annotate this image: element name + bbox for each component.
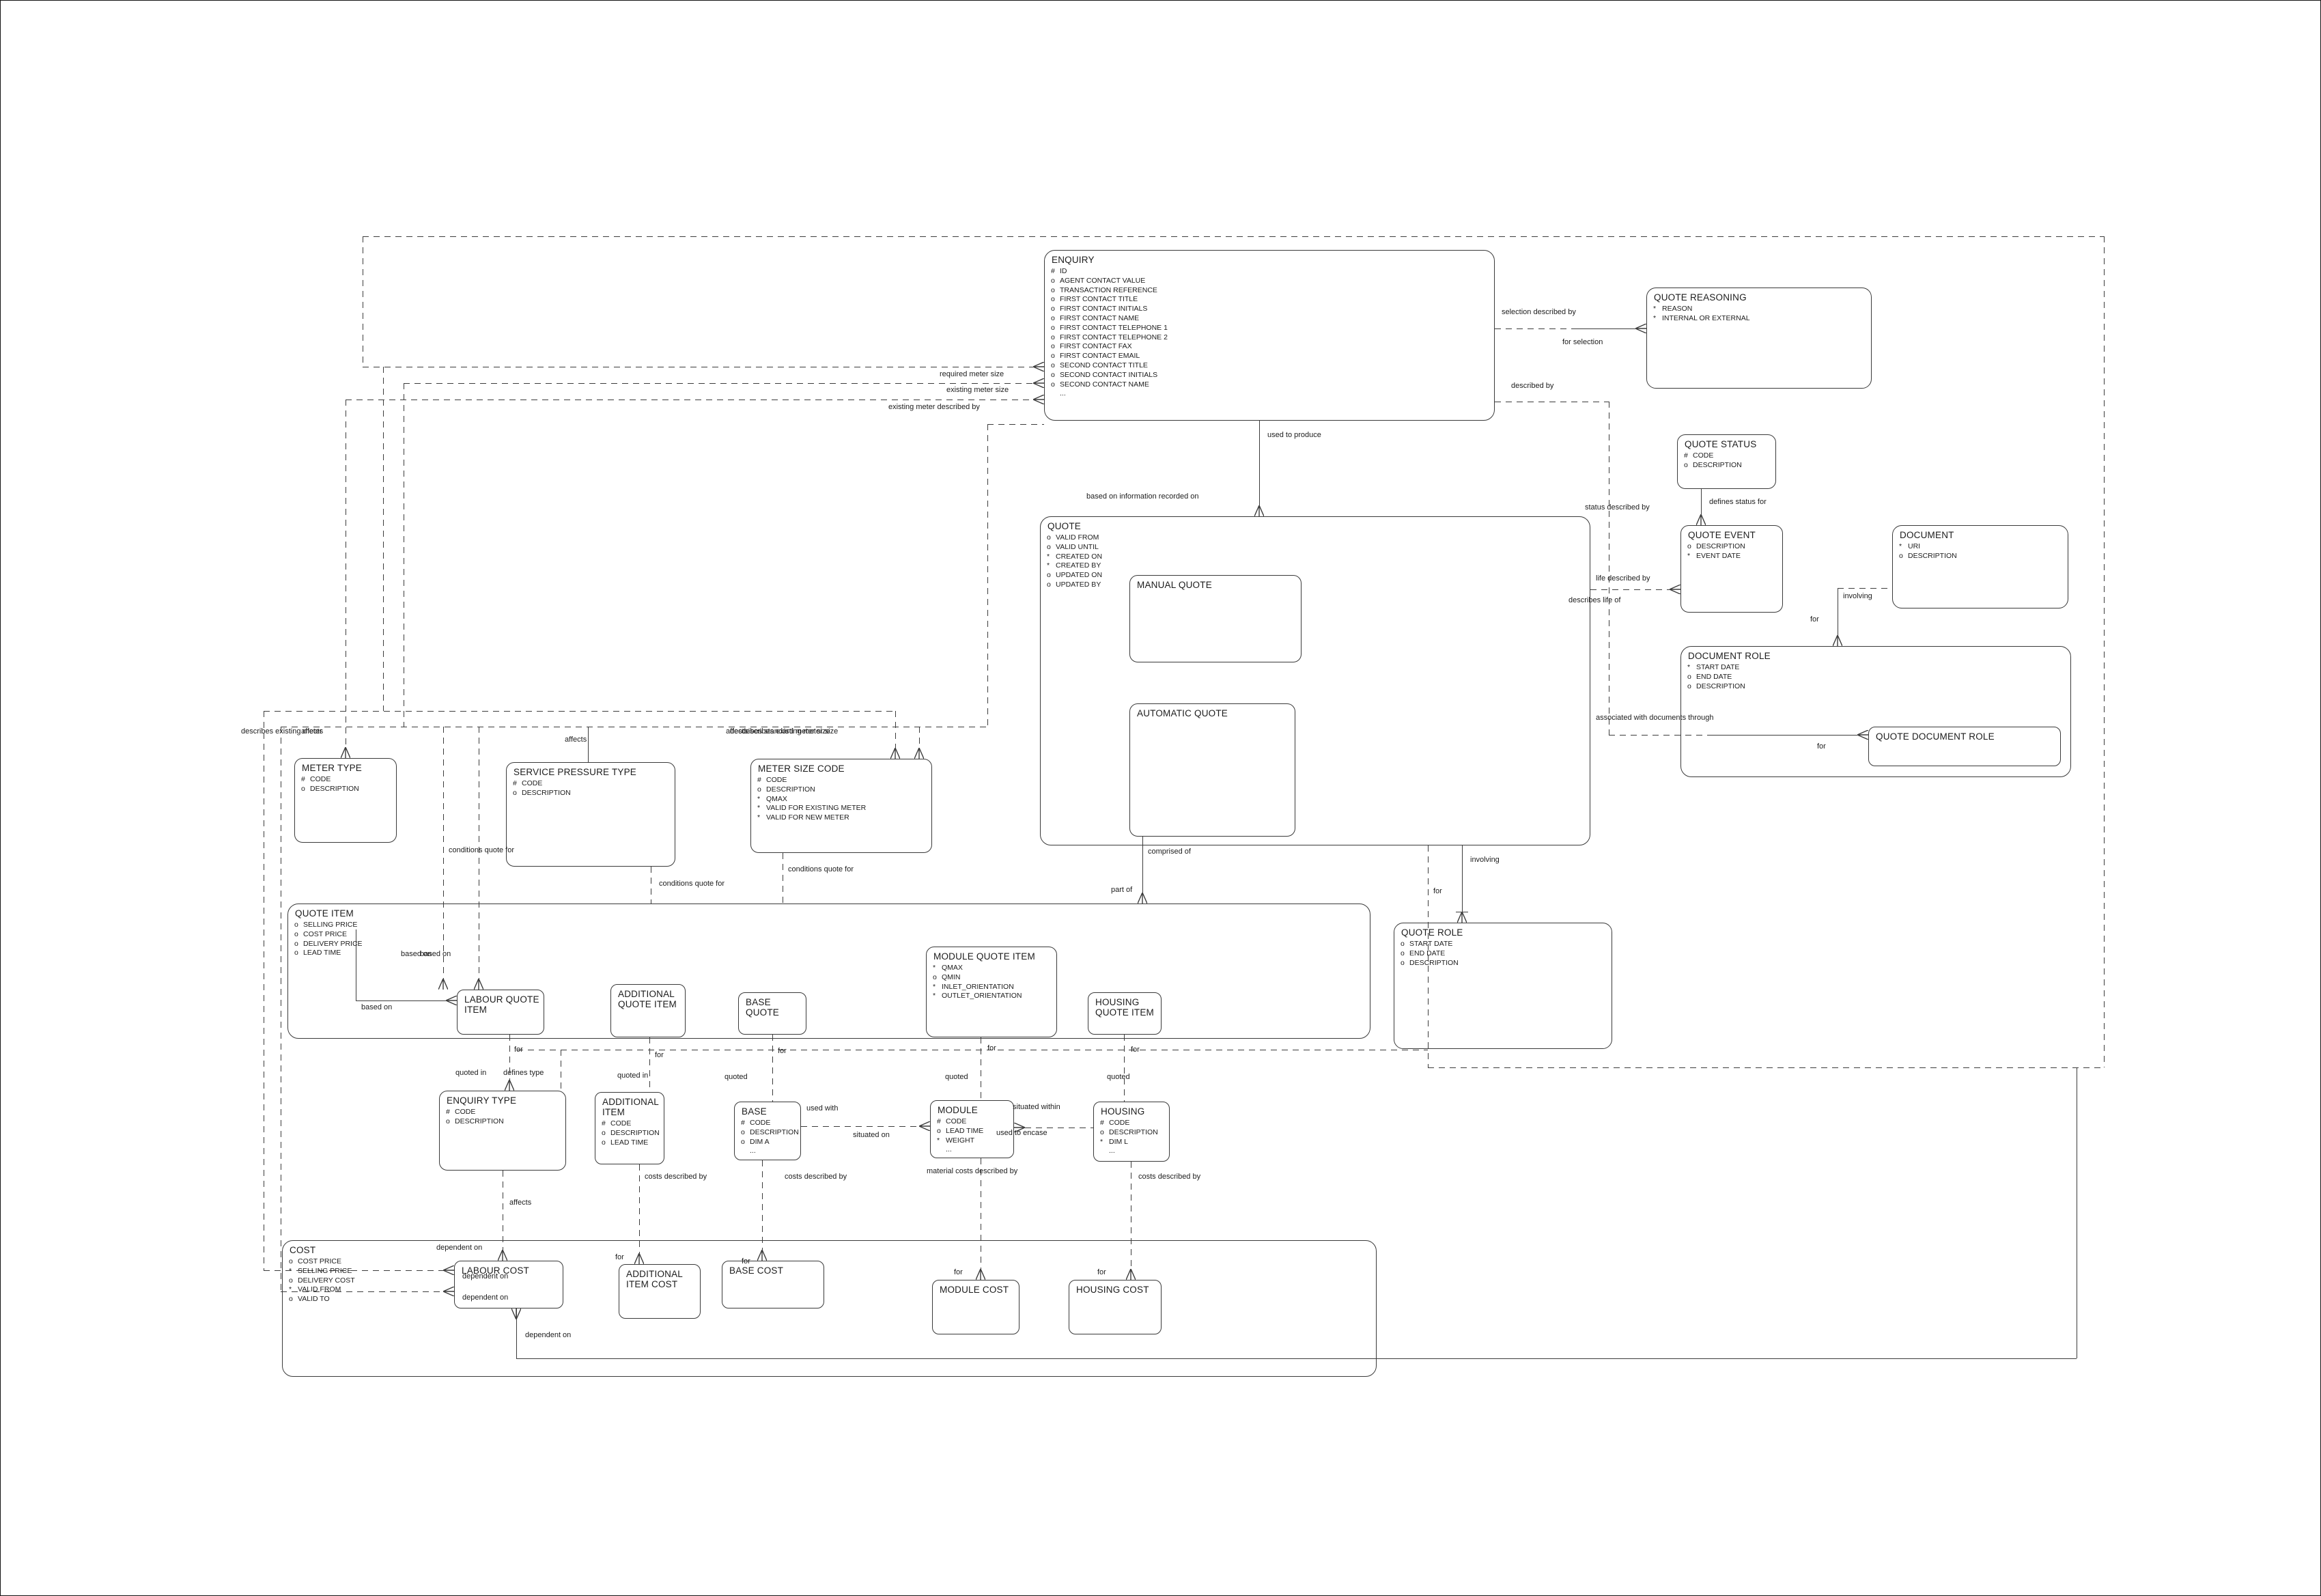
attribute-row: oSECOND CONTACT INITIALS <box>1051 371 1494 380</box>
rel-label-dependent-on: dependent on <box>462 1272 508 1280</box>
entity-cost: COSToCOST PRICE*SELLING PRICEoDELIVERY C… <box>282 1240 1377 1377</box>
attribute-marker: o <box>1047 580 1056 590</box>
entity-title-enquiry-type: ENQUIRY TYPE <box>440 1091 565 1106</box>
attribute-row: oVALID TO <box>289 1295 1376 1304</box>
attribute-marker: o <box>741 1128 750 1138</box>
rel-label-comprised-of: comprised of <box>1148 848 1191 856</box>
attribute-row: ... <box>741 1147 800 1156</box>
attribute-marker: o <box>1051 380 1060 390</box>
connector-segment <box>264 711 895 712</box>
attribute-marker: * <box>1047 561 1056 571</box>
crow-foot-icon <box>890 748 900 759</box>
attribute-name: VALID UNTIL <box>1056 543 1099 552</box>
connector-segment <box>987 424 988 727</box>
attribute-marker: # <box>602 1119 610 1129</box>
attribute-row: oTRANSACTION REFERENCE <box>1051 286 1494 296</box>
entity-title-base-quote: BASE QUOTE <box>739 993 806 1018</box>
rel-label-described-by: described by <box>1511 382 1553 390</box>
entity-title-housing: HOUSING <box>1094 1102 1169 1117</box>
attribute-marker: * <box>1653 305 1662 314</box>
rel-label-selection-described-by: selection described by <box>1502 308 1576 316</box>
attribute-name: UPDATED ON <box>1056 571 1102 580</box>
attribute-marker: o <box>757 785 766 795</box>
entity-title-quote-status: QUOTE STATUS <box>1678 435 1775 449</box>
attribute-row: oSECOND CONTACT TITLE <box>1051 361 1494 371</box>
attribute-marker: o <box>294 940 303 949</box>
attribute-name: LEAD TIME <box>610 1138 648 1148</box>
entity-title-enquiry: ENQUIRY <box>1045 251 1494 265</box>
entity-quote-role: QUOTE ROLEoSTART DATEoEND DATEoDESCRIPTI… <box>1394 923 1612 1049</box>
attribute-marker: o <box>289 1295 298 1304</box>
entity-title-base-cost: BASE COST <box>722 1261 824 1276</box>
attribute-marker: # <box>1100 1119 1109 1128</box>
connector-segment <box>1838 588 1892 589</box>
entity-module-quote-item: MODULE QUOTE ITEM*QMAXoQMIN*INLET_ORIENT… <box>926 947 1057 1037</box>
attribute-row: ... <box>1051 389 1494 399</box>
connector-segment <box>1428 1067 2104 1068</box>
entity-title-quote-item: QUOTE ITEM <box>288 904 1370 919</box>
attribute-row: oAGENT CONTACT VALUE <box>1051 277 1494 286</box>
entity-title-additional-item: ADDITIONAL ITEM <box>595 1093 664 1117</box>
entity-title-module: MODULE <box>931 1101 1013 1115</box>
attribute-marker: o <box>602 1129 610 1138</box>
rel-label-based-on: based on <box>361 1003 392 1011</box>
rel-label-involving: involving <box>1470 856 1500 864</box>
rel-label-associated-with-documents-through: associated with documents through <box>1596 714 1713 722</box>
attribute-row: oDESCRIPTION <box>757 785 931 795</box>
entity-attributes: *QMAXoQMIN*INLET_ORIENTATION*OUTLET_ORIE… <box>927 964 1056 1001</box>
entity-attributes: #CODEoDESCRIPTION <box>1678 451 1775 471</box>
attribute-row: #CODE <box>446 1108 565 1117</box>
entity-title-housing-quote-item: HOUSING QUOTE ITEM <box>1088 993 1161 1018</box>
attribute-row: #CODE <box>301 775 396 785</box>
entity-automatic-quote: AUTOMATIC QUOTE <box>1129 703 1295 837</box>
attribute-row: oLEAD TIME <box>294 949 1370 958</box>
attribute-marker: o <box>294 949 303 958</box>
attribute-row: *QMAX <box>757 795 931 804</box>
attribute-name: END DATE <box>1696 673 1732 682</box>
rel-label-conditions-quote-for: conditions quote for <box>659 880 725 888</box>
rel-label-defines-type: defines type <box>503 1069 544 1077</box>
entity-title-base: BASE <box>735 1102 800 1117</box>
rel-label-for: for <box>778 1047 787 1055</box>
entity-additional-quote-item: ADDITIONAL QUOTE ITEM <box>610 984 686 1037</box>
entity-title-quote-event: QUOTE EVENT <box>1681 526 1782 540</box>
attribute-marker <box>1100 1147 1109 1156</box>
attribute-marker: # <box>446 1108 455 1117</box>
attribute-row: *QMAX <box>933 964 1056 973</box>
attribute-name: CODE <box>522 779 542 789</box>
crow-foot-icon <box>1833 635 1842 646</box>
attribute-marker: o <box>294 921 303 930</box>
attribute-row: *INLET_ORIENTATION <box>933 983 1056 992</box>
crow-foot-icon <box>914 748 924 759</box>
attribute-name: CODE <box>766 776 787 785</box>
attribute-marker: o <box>1051 352 1060 361</box>
attribute-name: DESCRIPTION <box>766 785 815 795</box>
entity-base: BASE#CODEoDESCRIPTIONoDIM A... <box>734 1102 801 1160</box>
crow-foot-icon <box>438 979 448 990</box>
attribute-row: *VALID FOR EXISTING METER <box>757 804 931 813</box>
rel-label-part-of: part of <box>1111 886 1132 894</box>
attribute-name: FIRST CONTACT NAME <box>1060 314 1139 324</box>
attribute-row: oFIRST CONTACT INITIALS <box>1051 305 1494 314</box>
attribute-row: oDELIVERY PRICE <box>294 940 1370 949</box>
rel-label-for: for <box>1097 1268 1106 1276</box>
rel-label-for: for <box>1817 742 1826 751</box>
entity-attributes: #CODEoDESCRIPTIONoLEAD TIME <box>595 1119 664 1147</box>
attribute-row: #CODE <box>1100 1119 1169 1128</box>
rel-label-used-with: used with <box>806 1104 838 1112</box>
attribute-row: #CODE <box>757 776 931 785</box>
crow-foot-icon <box>634 1253 644 1264</box>
rel-label-costs-described-by: costs described by <box>785 1173 847 1181</box>
attribute-name: END DATE <box>1409 949 1445 959</box>
attribute-marker: o <box>301 785 310 794</box>
attribute-name: COST PRICE <box>298 1257 341 1267</box>
rel-label-defines-status-for: defines status for <box>1709 498 1767 506</box>
attribute-marker: o <box>1051 305 1060 314</box>
entity-title-document-role: DOCUMENT ROLE <box>1681 647 2070 661</box>
connector-segment <box>517 1050 1428 1050</box>
attribute-name: DELIVERY PRICE <box>303 940 363 949</box>
entity-enquiry-type: ENQUIRY TYPE#CODEoDESCRIPTION <box>439 1091 566 1171</box>
rel-label-costs-described-by: costs described by <box>1138 1173 1200 1181</box>
attribute-name: WEIGHT <box>946 1136 974 1146</box>
attribute-marker: o <box>933 973 942 983</box>
attribute-marker: o <box>1051 361 1060 371</box>
attribute-row: oSTART DATE <box>1401 940 1612 949</box>
attribute-marker: o <box>1051 286 1060 296</box>
attribute-marker <box>1051 389 1060 399</box>
attribute-marker: o <box>1100 1128 1109 1138</box>
rel-label-dependent-on: dependent on <box>462 1293 508 1302</box>
attribute-row: *REASON <box>1653 305 1871 314</box>
rel-label-existing-meter-described-by: existing meter described by <box>888 403 980 411</box>
entity-module-cost: MODULE COST <box>932 1280 1019 1334</box>
attribute-row: #ID <box>1051 267 1494 277</box>
entity-title-service-pressure-type: SERVICE PRESSURE TYPE <box>507 763 675 777</box>
rel-label-material-costs-described-by: material costs described by <box>927 1167 1017 1175</box>
attribute-name: SECOND CONTACT NAME <box>1060 380 1149 390</box>
attribute-row: *INTERNAL OR EXTERNAL <box>1653 314 1871 324</box>
connector-segment <box>772 1035 773 1102</box>
connector-segment <box>1124 1035 1125 1102</box>
attribute-marker: o <box>1051 371 1060 380</box>
connector-segment <box>783 853 783 904</box>
entity-quote-item: QUOTE ITEMoSELLING PRICEoCOST PRICEoDELI… <box>287 904 1370 1039</box>
attribute-name: SELLING PRICE <box>298 1267 352 1276</box>
crow-foot-icon <box>1696 514 1706 525</box>
attribute-marker: o <box>1899 552 1908 561</box>
connector-segment <box>346 400 346 750</box>
entity-meter-type: METER TYPE#CODEoDESCRIPTION <box>294 758 397 843</box>
connector-segment <box>363 367 1033 367</box>
attribute-name: ... <box>1109 1147 1115 1156</box>
attribute-marker: o <box>1051 324 1060 333</box>
attribute-row: *CREATED BY <box>1047 561 1590 571</box>
rel-label-costs-described-by: costs described by <box>645 1173 707 1181</box>
rel-label-situated-within: situated within <box>1013 1103 1060 1111</box>
rel-label-for: for <box>655 1051 664 1059</box>
connector-segment <box>649 1037 650 1092</box>
connector-segment <box>588 727 589 762</box>
rel-label-based-on: based on <box>420 950 451 958</box>
rel-label-involving: involving <box>1843 592 1872 600</box>
crow-foot-icon <box>1670 585 1680 594</box>
rel-label-conditions-quote-for: conditions quote for <box>449 846 514 854</box>
crow-foot-icon <box>1033 395 1044 404</box>
connector-segment <box>383 367 384 711</box>
attribute-name: DESCRIPTION <box>310 785 359 794</box>
attribute-row: oDESCRIPTION <box>1684 461 1775 471</box>
rel-label-for: for <box>1810 615 1819 624</box>
attribute-name: SECOND CONTACT TITLE <box>1060 361 1148 371</box>
connector-segment <box>404 383 1033 384</box>
attribute-marker: # <box>937 1117 946 1127</box>
attribute-marker: o <box>289 1276 298 1286</box>
entity-title-meter-size-code: METER SIZE CODE <box>751 759 931 774</box>
rel-label-for: for <box>1433 887 1442 895</box>
connector-segment <box>1701 489 1702 514</box>
attribute-name: DESCRIPTION <box>1908 552 1957 561</box>
crow-foot-icon <box>505 1080 514 1091</box>
connector-segment <box>404 383 404 727</box>
attribute-marker: o <box>1687 673 1696 682</box>
connector-segment <box>281 727 281 1291</box>
entity-title-automatic-quote: AUTOMATIC QUOTE <box>1130 704 1295 718</box>
attribute-row: oEND DATE <box>1687 673 2070 682</box>
attribute-marker: * <box>289 1267 298 1276</box>
connector-segment <box>346 400 1033 400</box>
attribute-name: QMAX <box>942 964 963 973</box>
entity-enquiry: ENQUIRY#IDoAGENT CONTACT VALUEoTRANSACTI… <box>1044 250 1495 421</box>
entity-housing-quote-item: HOUSING QUOTE ITEM <box>1088 992 1162 1035</box>
connector-segment <box>561 1050 561 1091</box>
connector-segment <box>1259 421 1260 505</box>
rel-label-dependent-on: dependent on <box>436 1244 482 1252</box>
attribute-row: oDESCRIPTION <box>602 1129 664 1138</box>
rel-label-affects: affects <box>565 736 587 744</box>
entity-attributes: *REASON*INTERNAL OR EXTERNAL <box>1647 305 1871 324</box>
entity-quote-document-role: QUOTE DOCUMENT ROLE <box>1868 727 2061 766</box>
crow-foot-icon <box>1857 730 1868 740</box>
rel-label-affects: affects <box>301 727 323 736</box>
attribute-marker: # <box>757 776 766 785</box>
attribute-name: UPDATED BY <box>1056 580 1101 590</box>
attribute-marker: o <box>937 1127 946 1136</box>
attribute-marker <box>937 1145 946 1155</box>
attribute-row: oFIRST CONTACT TELEPHONE 2 <box>1051 333 1494 343</box>
entity-attributes: #IDoAGENT CONTACT VALUEoTRANSACTION REFE… <box>1045 267 1494 399</box>
entity-title-quote-role: QUOTE ROLE <box>1394 923 1612 938</box>
attribute-name: DESCRIPTION <box>750 1128 799 1138</box>
attribute-row: oQMIN <box>933 973 1056 983</box>
attribute-name: DELIVERY COST <box>298 1276 355 1286</box>
attribute-name: LEAD TIME <box>303 949 341 958</box>
attribute-row: oDESCRIPTION <box>741 1128 800 1138</box>
entity-attributes: #CODEoDESCRIPTIONoDIM A... <box>735 1119 800 1156</box>
attribute-name: VALID FROM <box>298 1285 341 1295</box>
attribute-name: QMAX <box>766 795 787 804</box>
attribute-name: SELLING PRICE <box>303 921 357 930</box>
attribute-name: INTERNAL OR EXTERNAL <box>1662 314 1750 324</box>
attribute-name: CREATED BY <box>1056 561 1101 571</box>
crow-foot-icon <box>446 996 457 1005</box>
entity-attributes: *START DATEoEND DATEoDESCRIPTION <box>1681 663 2070 691</box>
crow-foot-icon <box>498 1250 507 1261</box>
rel-label-affects: affects <box>509 1199 531 1207</box>
attribute-marker: * <box>1899 542 1908 552</box>
crow-foot-icon <box>511 1308 521 1319</box>
rel-label-life-described-by: life described by <box>1596 574 1650 583</box>
attribute-marker: * <box>1687 552 1696 561</box>
attribute-name: ... <box>1060 389 1066 399</box>
rel-label-quoted: quoted <box>1107 1073 1130 1081</box>
attribute-name: QMIN <box>942 973 960 983</box>
entity-quote-reasoning: QUOTE REASONING*REASON*INTERNAL OR EXTER… <box>1646 288 1872 389</box>
entity-title-quote-reasoning: QUOTE REASONING <box>1647 288 1871 303</box>
connector-segment <box>2077 1067 2077 1358</box>
attribute-marker: * <box>933 983 942 992</box>
connector-segment <box>1462 845 1463 912</box>
attribute-marker: * <box>933 964 942 973</box>
attribute-row: oVALID FROM <box>1047 533 1590 543</box>
attribute-name: CREATED ON <box>1056 552 1102 562</box>
erd-canvas: ENQUIRY#IDoAGENT CONTACT VALUEoTRANSACTI… <box>0 0 2321 1596</box>
rel-label-quoted: quoted <box>945 1073 968 1081</box>
connector-segment <box>981 1037 981 1100</box>
attribute-name: COST PRICE <box>303 930 347 940</box>
attribute-marker: o <box>289 1257 298 1267</box>
crow-foot-icon <box>1138 893 1147 904</box>
attribute-marker: o <box>1401 949 1409 959</box>
entity-title-meter-type: METER TYPE <box>295 759 396 773</box>
entity-meter-size-code: METER SIZE CODE#CODEoDESCRIPTION*QMAX*VA… <box>750 759 932 853</box>
entity-document: DOCUMENT*URIoDESCRIPTION <box>1892 525 2068 608</box>
entity-title-additional-item-cost: ADDITIONAL ITEM COST <box>619 1265 700 1289</box>
rel-label-for: for <box>615 1253 624 1261</box>
attribute-marker: o <box>1687 542 1696 552</box>
attribute-marker: o <box>446 1117 455 1127</box>
entity-attributes: oCOST PRICE*SELLING PRICEoDELIVERY COST*… <box>283 1257 1376 1304</box>
attribute-row: oCOST PRICE <box>294 930 1370 940</box>
crow-foot-icon <box>976 1269 985 1280</box>
entity-additional-item: ADDITIONAL ITEM#CODEoDESCRIPTIONoLEAD TI… <box>595 1092 664 1164</box>
connector-segment <box>762 1160 763 1250</box>
attribute-name: SECOND CONTACT INITIALS <box>1060 371 1157 380</box>
attribute-marker: * <box>757 795 766 804</box>
attribute-row: #CODE <box>741 1119 800 1128</box>
attribute-name: AGENT CONTACT VALUE <box>1060 277 1145 286</box>
attribute-marker: # <box>741 1119 750 1128</box>
attribute-name: CODE <box>750 1119 770 1128</box>
connector-segment <box>363 236 2104 237</box>
attribute-marker: o <box>1047 543 1056 552</box>
attribute-row: oUPDATED BY <box>1047 580 1590 590</box>
attribute-row: oDESCRIPTION <box>1687 542 1782 552</box>
attribute-row: oEND DATE <box>1401 949 1612 959</box>
attribute-name: FIRST CONTACT TELEPHONE 1 <box>1060 324 1168 333</box>
attribute-row: #CODE <box>602 1119 664 1129</box>
attribute-name: FIRST CONTACT INITIALS <box>1060 305 1147 314</box>
rel-label-situated-on: situated on <box>853 1131 890 1139</box>
connector-segment <box>1590 589 1670 590</box>
attribute-marker: o <box>602 1138 610 1148</box>
attribute-marker: o <box>1051 295 1060 305</box>
entity-title-quote: QUOTE <box>1041 517 1590 531</box>
connector-segment <box>1571 328 1635 329</box>
rel-label-for: for <box>514 1046 523 1054</box>
entity-quote: QUOTEoVALID FROMoVALID UNTIL*CREATED ON*… <box>1040 516 1590 845</box>
attribute-row: oDELIVERY COST <box>289 1276 1376 1286</box>
attribute-marker: o <box>1051 314 1060 324</box>
attribute-marker: o <box>1047 571 1056 580</box>
attribute-name: DESCRIPTION <box>1409 959 1459 968</box>
entity-title-labour-quote-item: LABOUR QUOTE ITEM <box>458 990 544 1015</box>
crow-foot-icon <box>341 747 350 758</box>
attribute-marker: # <box>1051 267 1060 277</box>
crow-foot-icon <box>1635 324 1646 333</box>
crow-foot-icon <box>1126 1269 1136 1280</box>
crow-foot-icon <box>919 1121 930 1131</box>
connector-segment <box>1495 402 1609 402</box>
crow-foot-icon <box>1254 505 1264 516</box>
attribute-marker: o <box>741 1138 750 1147</box>
attribute-name: START DATE <box>1696 663 1739 673</box>
attribute-marker: o <box>1051 333 1060 343</box>
entity-service-pressure-type: SERVICE PRESSURE TYPE#CODEoDESCRIPTION <box>506 762 675 867</box>
attribute-name: VALID FOR NEW METER <box>766 813 849 823</box>
rel-label-existing-meter-size: existing meter size <box>946 386 1009 394</box>
attribute-marker: * <box>1687 663 1696 673</box>
attribute-name: DESCRIPTION <box>1109 1128 1158 1138</box>
attribute-row: *OUTLET_ORIENTATION <box>933 992 1056 1001</box>
entity-attributes: oSTART DATEoEND DATEoDESCRIPTION <box>1394 940 1612 968</box>
entity-attributes: oVALID FROMoVALID UNTIL*CREATED ON*CREAT… <box>1041 533 1590 590</box>
attribute-row: *CREATED ON <box>1047 552 1590 562</box>
attribute-name: DESCRIPTION <box>610 1129 660 1138</box>
attribute-name: ... <box>946 1145 952 1155</box>
attribute-name: FIRST CONTACT EMAIL <box>1060 352 1140 361</box>
rel-label-for: for <box>1131 1046 1140 1054</box>
attribute-name: TRANSACTION REFERENCE <box>1060 286 1157 296</box>
entity-attributes: #CODEoDESCRIPTION <box>440 1108 565 1127</box>
connector-segment <box>2104 236 2105 1067</box>
attribute-row: oDESCRIPTION <box>1687 682 2070 692</box>
connector-segment <box>264 711 264 1270</box>
attribute-row: #CODE <box>937 1117 1013 1127</box>
attribute-row: #CODE <box>1684 451 1775 461</box>
attribute-name: DIM L <box>1109 1138 1128 1147</box>
attribute-marker: * <box>937 1136 946 1146</box>
rel-label-for: for <box>742 1257 750 1265</box>
connector-segment <box>503 1171 503 1250</box>
crow-foot-icon <box>1457 912 1467 923</box>
entity-attributes: #CODEoDESCRIPTION <box>507 779 675 798</box>
attribute-marker: o <box>513 789 522 798</box>
attribute-row: oFIRST CONTACT EMAIL <box>1051 352 1494 361</box>
attribute-marker: * <box>1653 314 1662 324</box>
attribute-name: OUTLET_ORIENTATION <box>942 992 1022 1001</box>
rel-label-for-selection: for selection <box>1562 338 1603 346</box>
entity-base-cost: BASE COST <box>722 1261 824 1308</box>
attribute-name: CODE <box>946 1117 966 1127</box>
rel-label-quoted-in: quoted in <box>455 1069 486 1077</box>
attribute-marker: o <box>1684 461 1693 471</box>
entity-title-document: DOCUMENT <box>1893 526 2068 540</box>
attribute-row: oDESCRIPTION <box>1401 959 1612 968</box>
